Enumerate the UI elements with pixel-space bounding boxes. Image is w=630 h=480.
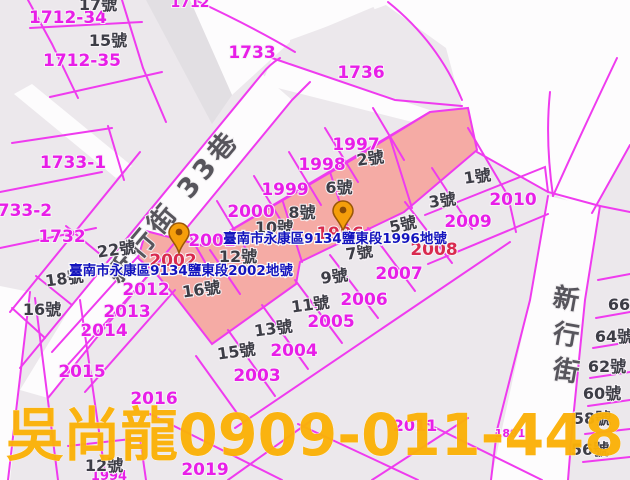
parcel-number-label: 2012	[122, 280, 169, 300]
house-number-label: 66號	[608, 295, 630, 314]
parcel-number-label: 1998	[298, 155, 345, 175]
watermark-contact-text: 吳尚龍0909-011-448	[6, 401, 624, 469]
address-label: 臺南市永康區9134鹽東段1996地號	[223, 230, 447, 247]
parcel-number-label: 2014	[80, 321, 127, 341]
parcel-number-label: 2010	[489, 190, 536, 210]
parcel-number-label: 2006	[340, 290, 387, 310]
house-number-label: 15號	[89, 31, 127, 50]
house-number-label: 1號	[462, 165, 492, 188]
parcel-number-label: 2009	[444, 212, 491, 232]
parcel-number-label: 1733-1	[40, 153, 106, 173]
address-label: 臺南市永康區9134鹽東段2002地號	[69, 262, 293, 279]
parcel-number-label: 1712	[171, 0, 210, 11]
parcel-number-label: 1736	[337, 63, 384, 83]
house-number-label: 9號	[319, 265, 349, 288]
house-number-label: 17號	[79, 0, 117, 14]
parcel-number-label: 2007	[375, 264, 422, 284]
parcel-number-label: 2005	[307, 312, 354, 332]
parcel-number-label: 1733	[228, 43, 275, 63]
house-number-label: 2號	[355, 147, 385, 170]
street-name-vertical: 行	[550, 317, 587, 353]
parcel-number-label: 1712-35	[43, 51, 121, 71]
parcel-number-label: 1999	[261, 180, 308, 200]
parcel-number-label: 2004	[270, 341, 317, 361]
house-number-label: 6號	[325, 178, 352, 197]
watermark-label: 吳尚龍0909-011-448	[6, 401, 624, 469]
house-number-label: 3號	[427, 189, 457, 212]
parcel-number-label: 2013	[103, 302, 150, 322]
street-name-vertical: 街	[550, 354, 587, 389]
parcel-number-label: 1733-2	[0, 201, 52, 221]
parcel-number-label: 2015	[58, 362, 105, 382]
parcel-number-label: 1732	[38, 227, 85, 247]
house-number-label: 64號	[595, 327, 630, 346]
house-number-label: 16號	[23, 300, 61, 319]
house-number-label: 62號	[588, 357, 626, 376]
cadastral-map-view: 新行街 33巷新行街 17121712-341712-3517331736173…	[0, 0, 630, 480]
parcel-number-label: 2003	[233, 366, 280, 386]
street-name-vertical: 新	[551, 282, 587, 318]
map-canvas[interactable]: 新行街 33巷新行街 17121712-341712-3517331736173…	[0, 0, 630, 480]
